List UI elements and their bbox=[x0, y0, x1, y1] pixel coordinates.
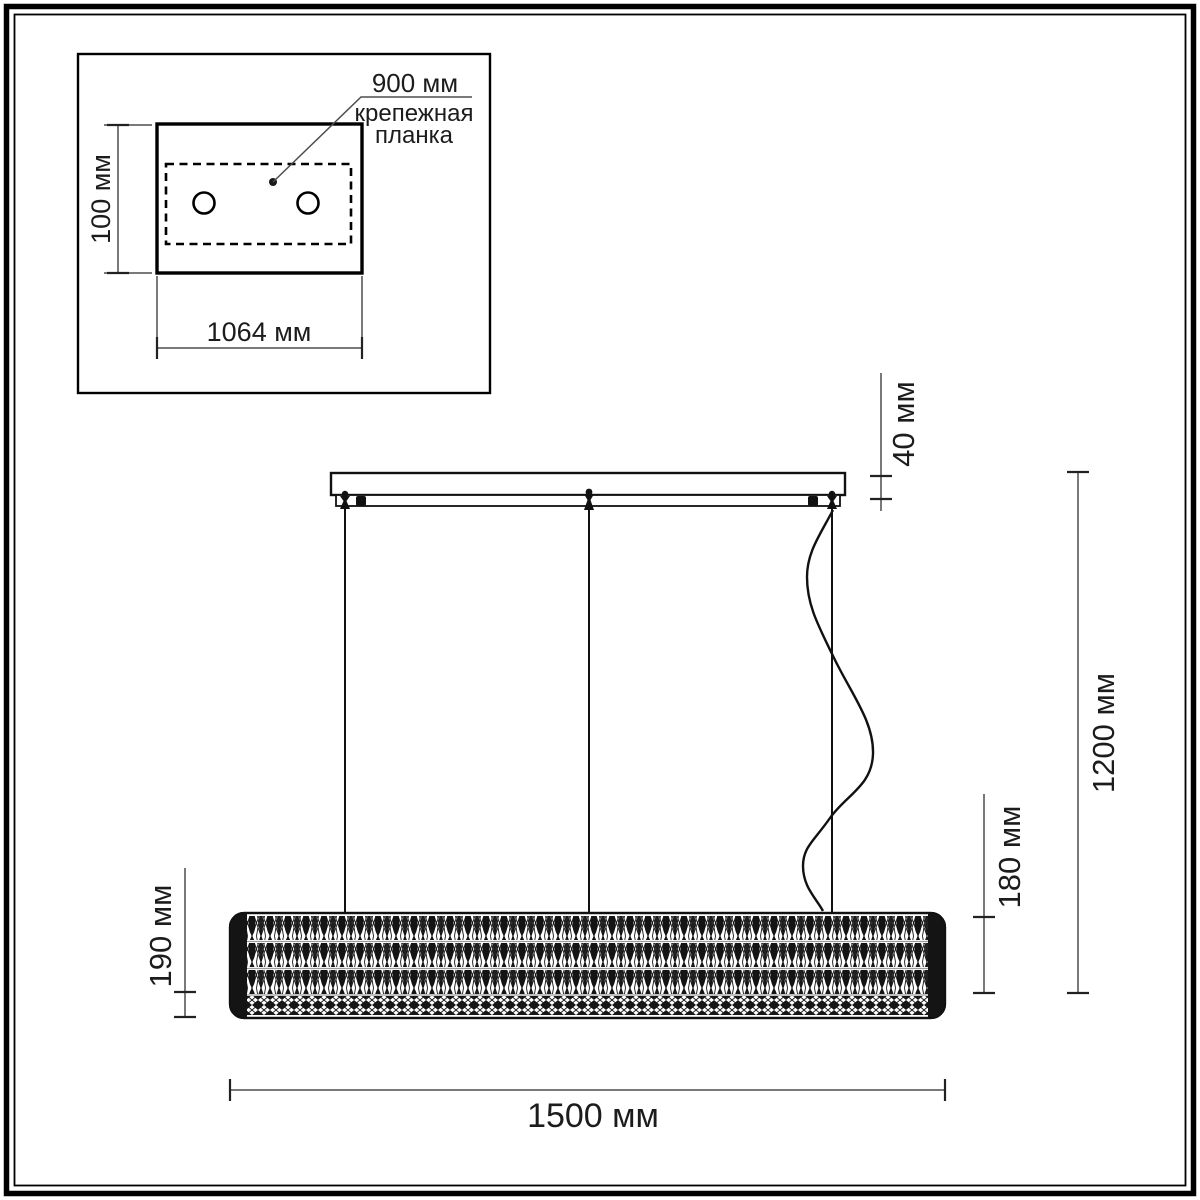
canopy-height-label: 40 мм bbox=[886, 381, 921, 467]
dimension-canopy-height: 40 мм bbox=[870, 373, 921, 511]
length-label: 1500 мм bbox=[527, 1097, 659, 1135]
mount-hole-left bbox=[194, 193, 215, 214]
crystal-shade bbox=[230, 913, 945, 1018]
canopy-plate-top-view bbox=[157, 124, 362, 273]
overall-drop-label: 1200 мм bbox=[1086, 673, 1121, 793]
mount-hole-right bbox=[298, 193, 319, 214]
power-cord-wavy bbox=[803, 510, 873, 911]
main-elevation: 40 мм 1200 мм 180 мм 190 мм bbox=[143, 373, 1121, 1135]
dimension-length: 1500 мм bbox=[230, 1079, 945, 1135]
leader-caption-line2: планка bbox=[375, 122, 454, 149]
leader-value-label: 900 мм bbox=[372, 68, 458, 98]
ceiling-canopy bbox=[331, 473, 845, 510]
plate-height-label: 100 мм bbox=[86, 154, 116, 244]
shade-end-cap-right bbox=[928, 914, 944, 1017]
crystal-row-3 bbox=[238, 970, 937, 994]
bolt-right bbox=[808, 496, 818, 506]
crystal-row-1 bbox=[238, 916, 937, 940]
shade-height-right-label: 180 мм bbox=[992, 806, 1027, 909]
plate-width-label: 1064 мм bbox=[207, 317, 312, 347]
dimension-shade-height-right: 180 мм bbox=[973, 794, 1027, 993]
dimension-overall-drop: 1200 мм bbox=[1067, 472, 1121, 993]
crystal-bottom-band bbox=[238, 996, 937, 1015]
shade-end-cap-left bbox=[231, 914, 247, 1017]
inset-panel: 900 мм крепежная планка 100 мм 1064 мм bbox=[78, 54, 490, 393]
dimension-shade-height-left: 190 мм bbox=[143, 868, 196, 1018]
technical-drawing-canvas: 900 мм крепежная планка 100 мм 1064 мм bbox=[0, 0, 1200, 1200]
shade-height-left-label: 190 мм bbox=[143, 885, 178, 988]
crystal-row-2 bbox=[238, 943, 937, 967]
bolt-left bbox=[356, 496, 366, 506]
suspension-cables bbox=[345, 505, 832, 915]
